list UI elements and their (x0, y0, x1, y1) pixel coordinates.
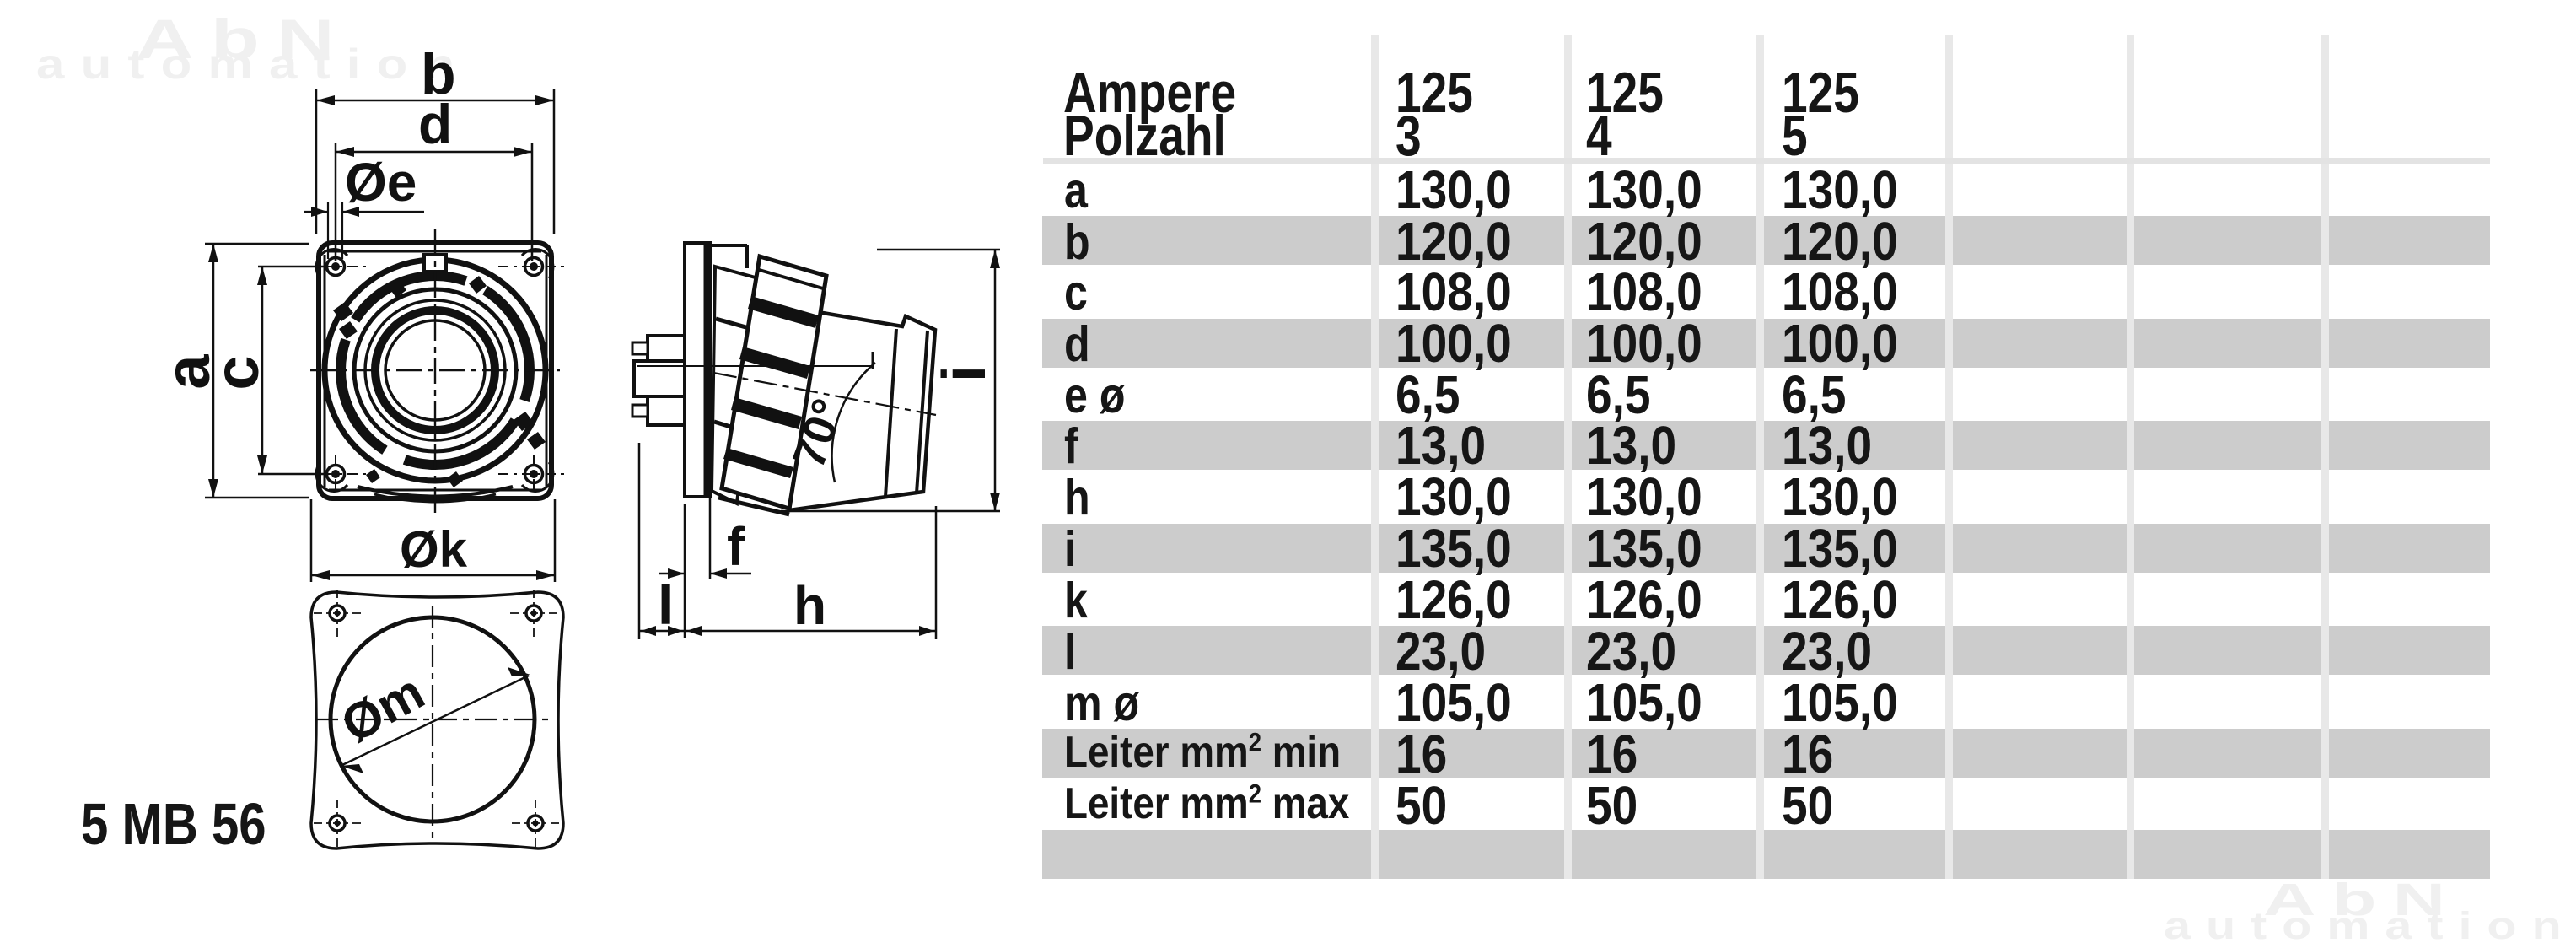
svg-text:c: c (202, 355, 272, 390)
svg-text:h: h (793, 575, 826, 636)
svg-text:Øm: Øm (332, 663, 433, 753)
svg-text:Øe: Øe (345, 152, 417, 213)
svg-text:Øk: Øk (400, 521, 468, 578)
svg-text:i: i (931, 365, 998, 382)
svg-text:d: d (418, 93, 452, 155)
svg-text:f: f (727, 516, 745, 577)
svg-text:l: l (658, 574, 673, 636)
